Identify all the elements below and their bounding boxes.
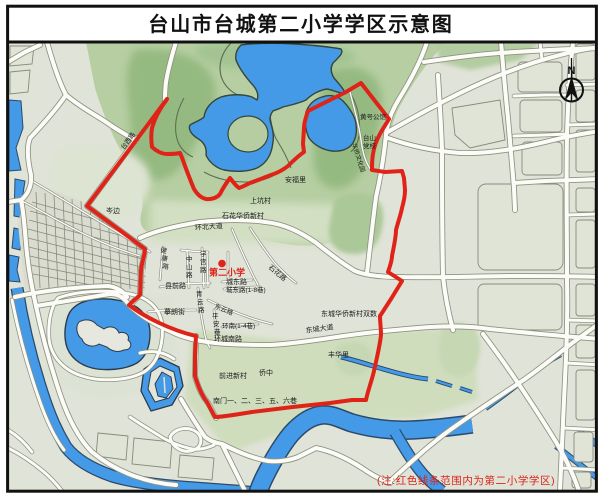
svg-text:城东路(1-8巷): 城东路(1-8巷)	[226, 285, 266, 294]
svg-text:山: 山	[186, 262, 193, 271]
svg-text:平: 平	[212, 312, 219, 320]
svg-text:N: N	[568, 65, 576, 77]
svg-text:路: 路	[200, 265, 207, 274]
svg-text:环南(1-4巷): 环南(1-4巷)	[222, 321, 255, 330]
svg-text:南门一、二、三、五、六巷: 南门一、二、三、五、六巷	[213, 396, 297, 405]
svg-text:丰华里: 丰华里	[328, 350, 349, 359]
svg-text:城东路: 城东路	[226, 277, 247, 286]
svg-text:黄号公馆: 黄号公馆	[360, 112, 387, 121]
svg-text:云: 云	[197, 298, 204, 306]
svg-text:前进新村: 前进新村	[219, 371, 247, 380]
svg-text:上坑村: 上坑村	[250, 196, 271, 205]
svg-text:石花华侨新村: 石花华侨新村	[222, 211, 264, 220]
svg-text:台山市台城第二小学学区示意图: 台山市台城第二小学学区示意图	[148, 12, 453, 36]
svg-text:安福里: 安福里	[285, 175, 306, 184]
svg-text:青: 青	[196, 289, 203, 298]
svg-text:中: 中	[186, 254, 193, 263]
svg-text:安: 安	[213, 319, 220, 328]
svg-text:东城华侨新村双数: 东城华侨新村双数	[321, 309, 377, 318]
svg-text:台山: 台山	[363, 133, 376, 142]
svg-text:环城南路: 环城南路	[214, 334, 242, 343]
svg-text:党校: 党校	[363, 141, 377, 150]
svg-text:(注:红色线条范围内为第二小学学区): (注:红色线条范围内为第二小学学区)	[377, 474, 555, 487]
svg-text:宫: 宫	[200, 257, 207, 266]
svg-text:第二小学: 第二小学	[209, 267, 245, 278]
svg-text:路: 路	[186, 270, 193, 279]
svg-text:侨中: 侨中	[259, 368, 273, 377]
svg-text:路: 路	[198, 305, 205, 314]
svg-text:县前路: 县前路	[165, 281, 186, 290]
svg-text:岑边: 岑边	[106, 206, 120, 215]
svg-text:学: 学	[200, 249, 207, 258]
svg-text:巷: 巷	[214, 328, 221, 336]
svg-text:摹朗街: 摹朗街	[164, 307, 185, 316]
